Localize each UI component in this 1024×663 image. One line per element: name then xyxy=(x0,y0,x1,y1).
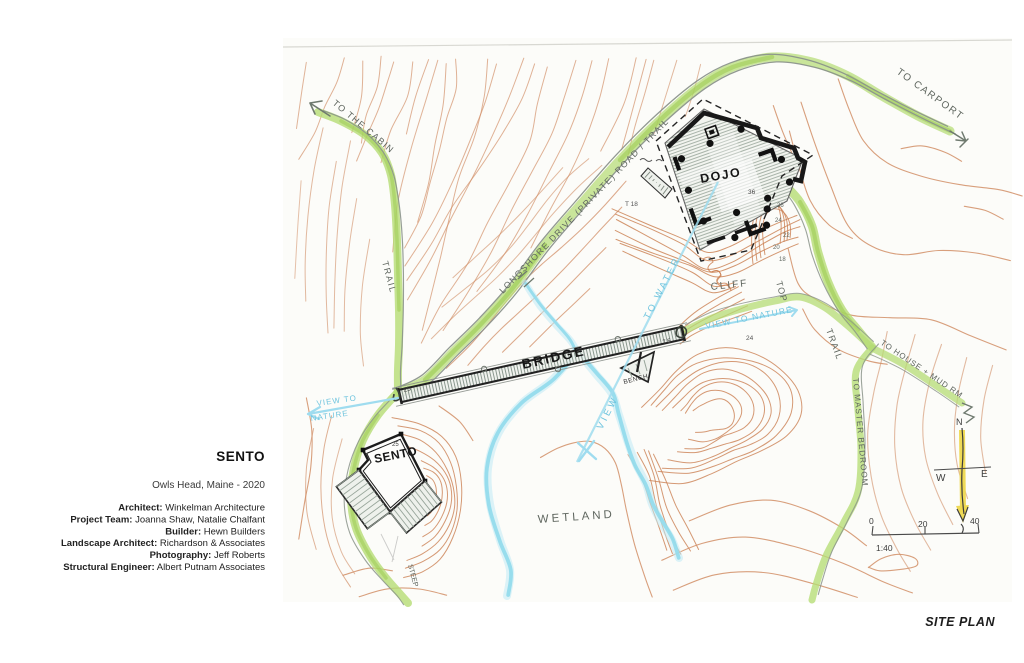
svg-text:N: N xyxy=(956,417,963,427)
svg-text:0: 0 xyxy=(869,516,874,526)
svg-text:Photography: Jeff Roberts: Photography: Jeff Roberts xyxy=(150,550,266,561)
svg-text:Owls Head, Maine - 2020: Owls Head, Maine - 2020 xyxy=(152,480,265,491)
svg-text:18: 18 xyxy=(779,257,786,263)
svg-text:40: 40 xyxy=(970,516,980,526)
svg-text:SENTO: SENTO xyxy=(216,449,265,464)
svg-text:SITE PLAN: SITE PLAN xyxy=(925,615,995,629)
svg-text:25: 25 xyxy=(392,442,399,448)
svg-text:T 18: T 18 xyxy=(625,201,638,208)
svg-text:W: W xyxy=(936,473,946,484)
svg-text:20: 20 xyxy=(918,519,928,529)
svg-text:Landscape Architect: Richards: Landscape Architect: Richardson & Associ… xyxy=(61,538,265,549)
svg-text:Builder: Hewn Builders: Builder: Hewn Builders xyxy=(165,526,265,537)
svg-text:36: 36 xyxy=(748,189,756,196)
svg-text:24: 24 xyxy=(775,218,782,224)
svg-text:26: 26 xyxy=(777,203,784,209)
svg-text:E: E xyxy=(981,469,988,480)
svg-text:Project Team: Joanna Shaw, Na: Project Team: Joanna Shaw, Natalie Chalf… xyxy=(70,514,265,525)
svg-text:22: 22 xyxy=(783,233,790,239)
svg-text:Architect: Winkelman Architect: Architect: Winkelman Architecture xyxy=(118,503,265,514)
svg-text:Structural Engineer: Albert P: Structural Engineer: Albert Putnam Assoc… xyxy=(63,562,265,573)
svg-text:1:40: 1:40 xyxy=(876,543,893,553)
svg-text:20: 20 xyxy=(773,245,780,251)
svg-text:24: 24 xyxy=(746,335,754,342)
